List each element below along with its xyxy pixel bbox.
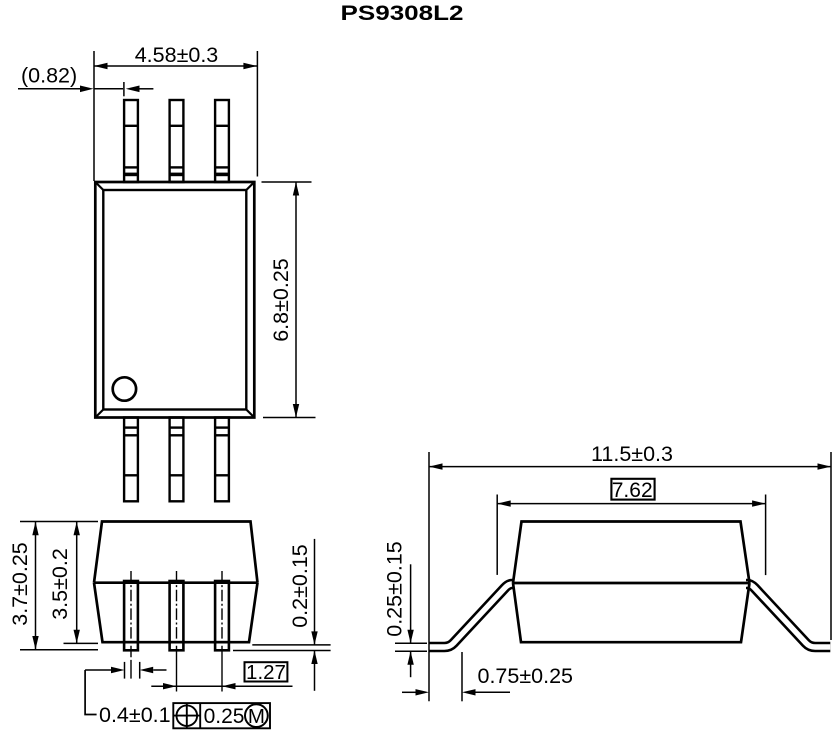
svg-text:0.25±0.15: 0.25±0.15 — [383, 541, 407, 637]
svg-text:4.58±0.3: 4.58±0.3 — [135, 43, 219, 67]
svg-text:3.7±0.25: 3.7±0.25 — [8, 542, 32, 626]
svg-text:PS9308L2: PS9308L2 — [341, 2, 464, 25]
svg-text:0.2±0.15: 0.2±0.15 — [288, 544, 312, 628]
svg-text:7.62: 7.62 — [612, 479, 653, 502]
svg-text:(0.82): (0.82) — [21, 64, 77, 88]
svg-text:0.75±0.25: 0.75±0.25 — [478, 664, 574, 688]
svg-text:3.5±0.2: 3.5±0.2 — [48, 548, 72, 620]
svg-text:M: M — [248, 705, 265, 728]
svg-text:0.4±0.1: 0.4±0.1 — [99, 703, 171, 727]
svg-text:11.5±0.3: 11.5±0.3 — [591, 442, 673, 466]
svg-text:6.8±0.25: 6.8±0.25 — [269, 258, 293, 342]
svg-text:0.25: 0.25 — [204, 705, 245, 728]
svg-text:1.27: 1.27 — [246, 661, 286, 684]
